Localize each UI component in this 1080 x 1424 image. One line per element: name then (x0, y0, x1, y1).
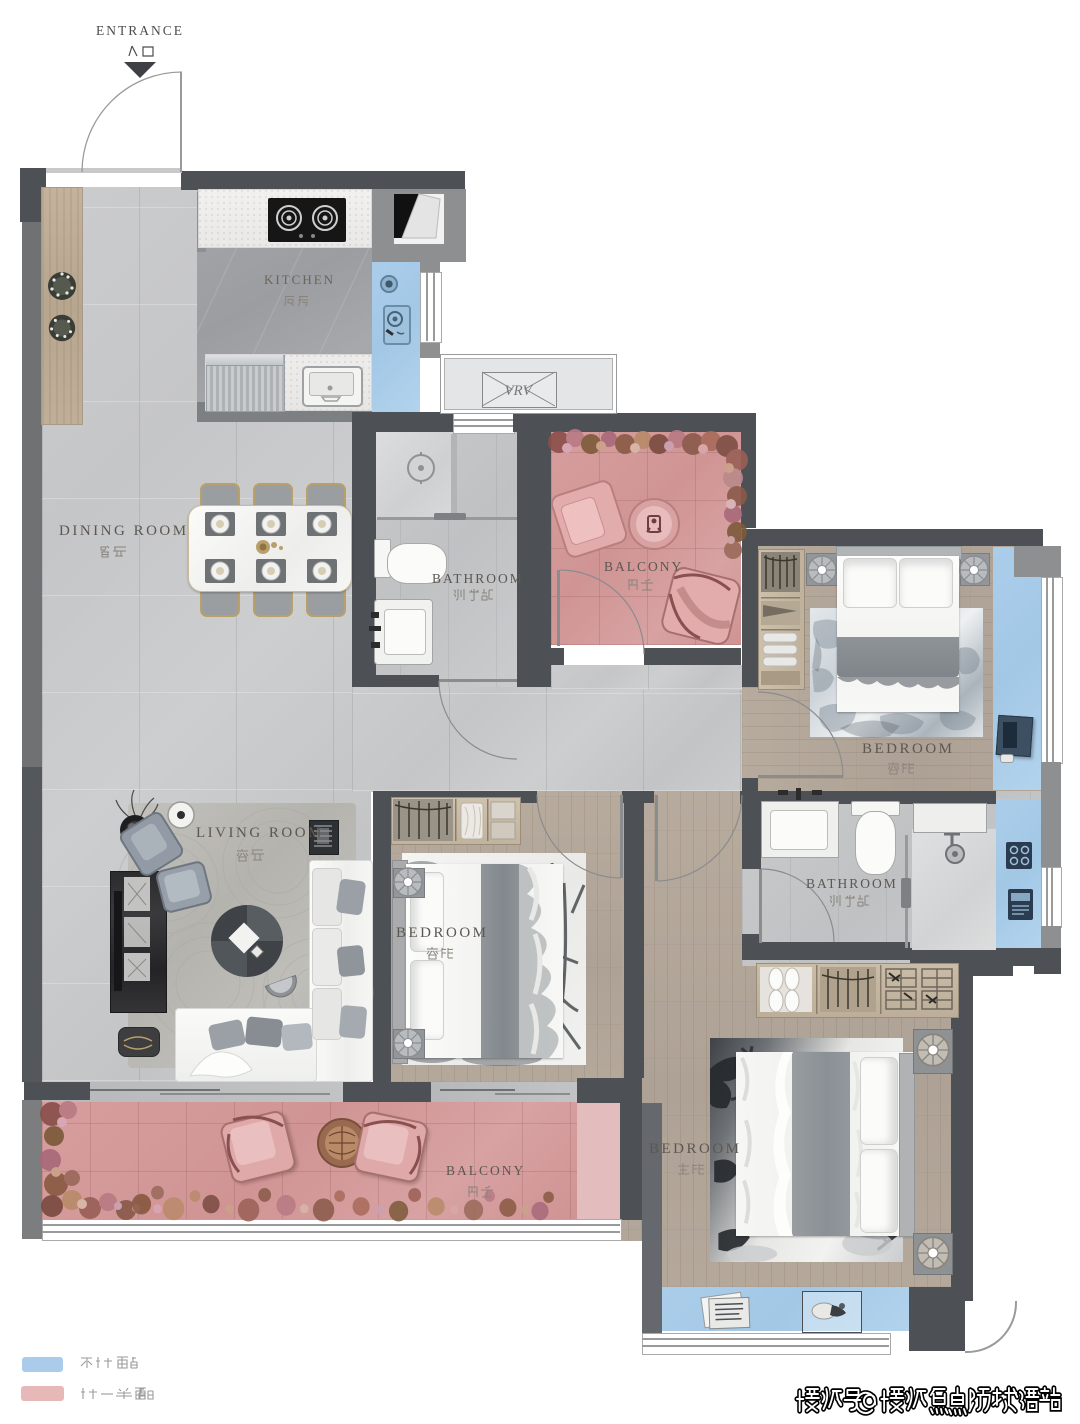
svg-text:VRV: VRV (504, 383, 533, 399)
